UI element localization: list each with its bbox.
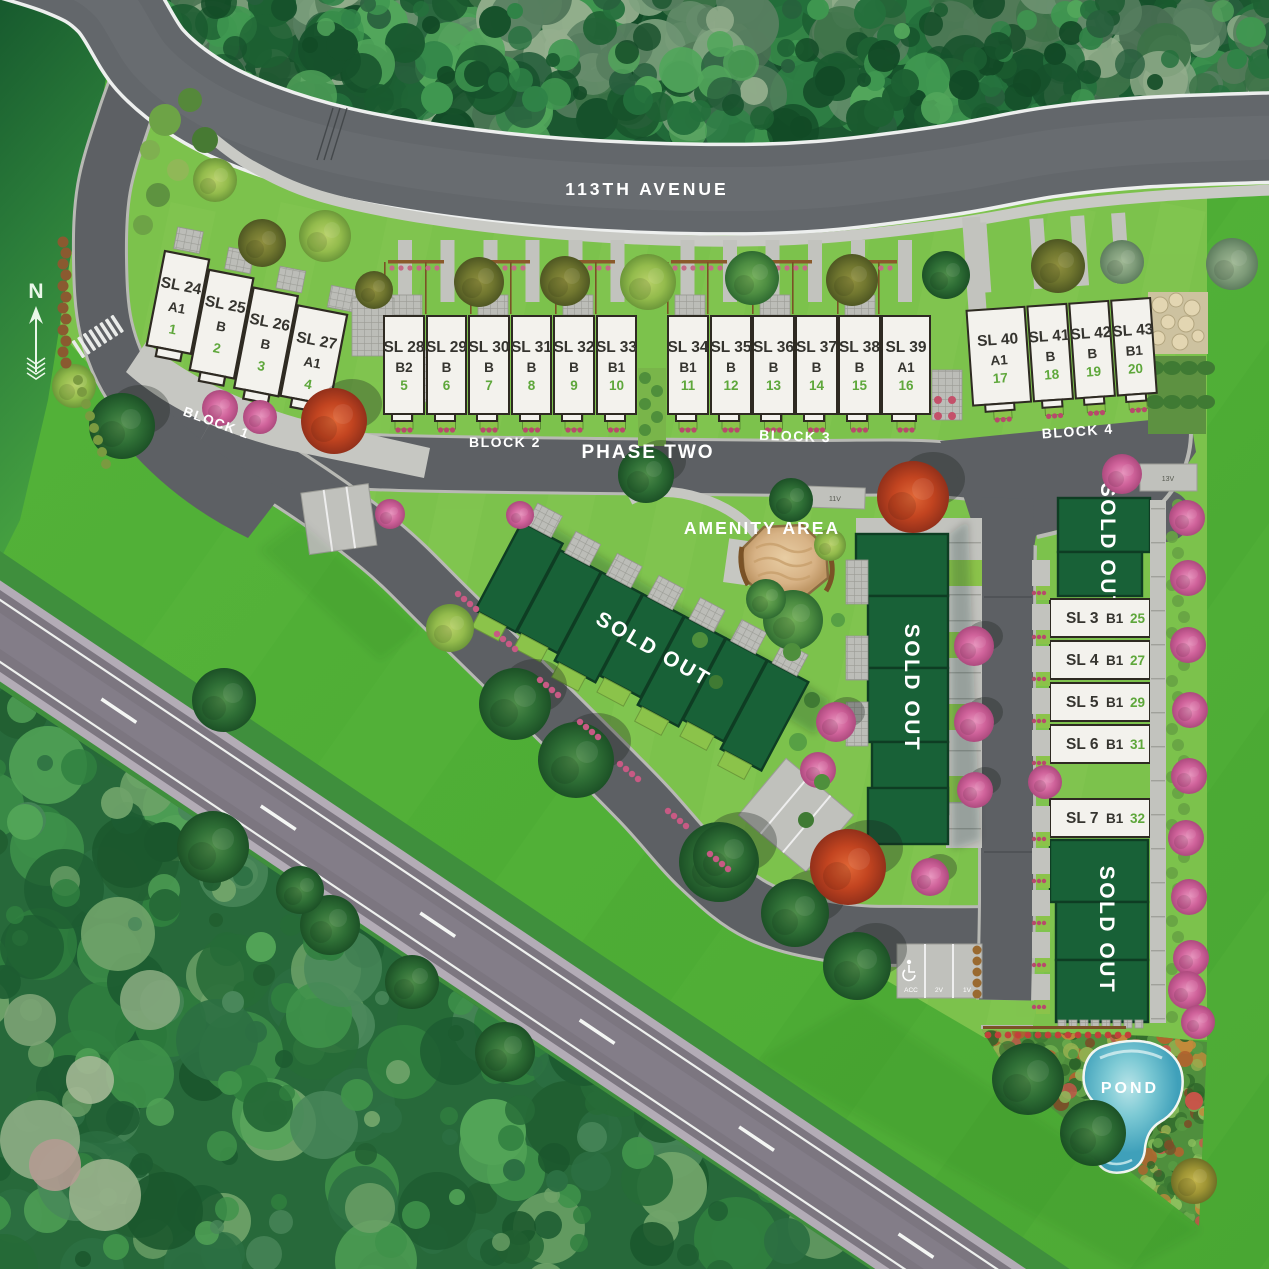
svg-text:14: 14	[809, 378, 825, 393]
svg-text:AMENITY AREA: AMENITY AREA	[684, 518, 840, 538]
svg-text:SL 42: SL 42	[1070, 324, 1112, 344]
svg-text:19: 19	[1086, 364, 1102, 380]
svg-text:7: 7	[485, 378, 493, 393]
svg-text:15: 15	[852, 378, 868, 393]
svg-text:SOLD OUT: SOLD OUT	[900, 624, 923, 753]
svg-text:SL 36: SL 36	[753, 339, 794, 356]
svg-text:B: B	[527, 360, 537, 375]
svg-text:17: 17	[992, 370, 1008, 386]
svg-text:32: 32	[1130, 811, 1145, 826]
svg-text:5: 5	[400, 378, 408, 393]
svg-text:6: 6	[443, 378, 451, 393]
svg-text:BLOCK 3: BLOCK 3	[759, 427, 831, 446]
svg-text:13: 13	[766, 378, 782, 393]
svg-text:SL 43: SL 43	[1112, 321, 1155, 341]
svg-text:B1: B1	[1106, 811, 1124, 826]
svg-text:SL 30: SL 30	[468, 339, 509, 356]
svg-text:B1: B1	[1106, 653, 1124, 668]
svg-text:20: 20	[1127, 361, 1143, 377]
svg-text:B: B	[484, 360, 494, 375]
svg-text:POND: POND	[1101, 1080, 1159, 1097]
svg-text:B: B	[442, 360, 452, 375]
svg-text:SL 4: SL 4	[1066, 652, 1099, 669]
svg-text:SOLD OUT: SOLD OUT	[1096, 483, 1119, 612]
svg-text:2V: 2V	[935, 987, 944, 994]
svg-text:B: B	[855, 360, 865, 375]
svg-text:SL 35: SL 35	[710, 339, 751, 356]
svg-text:A1: A1	[990, 352, 1009, 368]
svg-text:B: B	[569, 360, 579, 375]
svg-text:SL 7: SL 7	[1066, 810, 1098, 827]
svg-text:SL 33: SL 33	[596, 339, 637, 356]
svg-text:B1: B1	[679, 360, 697, 375]
svg-text:SL 29: SL 29	[426, 339, 467, 356]
svg-text:SL 40: SL 40	[977, 330, 1019, 350]
svg-text:B: B	[769, 360, 779, 375]
svg-text:B: B	[812, 360, 822, 375]
svg-text:SL 37: SL 37	[796, 339, 837, 356]
svg-text:B: B	[1087, 346, 1098, 362]
svg-text:B1: B1	[608, 360, 626, 375]
svg-text:SL 32: SL 32	[553, 339, 594, 356]
svg-text:1V: 1V	[963, 987, 972, 994]
svg-text:113TH AVENUE: 113TH AVENUE	[565, 179, 728, 199]
svg-text:31: 31	[1130, 737, 1146, 752]
svg-text:8: 8	[528, 378, 536, 393]
svg-text:SL 34: SL 34	[667, 339, 708, 356]
svg-text:B1: B1	[1125, 343, 1144, 359]
svg-text:B1: B1	[1106, 737, 1124, 752]
svg-text:SL 6: SL 6	[1066, 736, 1099, 753]
svg-text:SL 3: SL 3	[1066, 610, 1099, 627]
svg-text:SL 38: SL 38	[839, 339, 880, 356]
svg-text:27: 27	[1130, 653, 1145, 668]
svg-text:18: 18	[1044, 367, 1061, 383]
svg-text:SL 31: SL 31	[511, 339, 552, 356]
svg-text:N: N	[28, 280, 43, 303]
svg-text:13V: 13V	[1162, 476, 1175, 483]
svg-text:SL 41: SL 41	[1028, 327, 1071, 347]
svg-text:PHASE TWO: PHASE TWO	[581, 442, 714, 463]
svg-text:11V: 11V	[829, 496, 842, 503]
svg-text:25: 25	[1130, 611, 1146, 626]
svg-text:A1: A1	[897, 360, 915, 375]
svg-text:29: 29	[1130, 695, 1145, 710]
svg-text:B1: B1	[1106, 611, 1124, 626]
svg-text:BLOCK 2: BLOCK 2	[469, 434, 541, 450]
svg-text:12: 12	[723, 378, 738, 393]
svg-text:SL 39: SL 39	[885, 339, 926, 356]
svg-text:10: 10	[609, 378, 624, 393]
svg-text:9: 9	[570, 378, 578, 393]
svg-text:B: B	[726, 360, 736, 375]
svg-text:SL 28: SL 28	[383, 339, 424, 356]
svg-text:ACC: ACC	[904, 987, 918, 994]
svg-text:SOLD OUT: SOLD OUT	[1095, 866, 1118, 995]
svg-text:B2: B2	[395, 360, 412, 375]
svg-text:B1: B1	[1106, 695, 1124, 710]
svg-text:11: 11	[681, 378, 696, 393]
svg-text:16: 16	[898, 378, 914, 393]
svg-text:B: B	[1045, 349, 1056, 365]
svg-text:SL 5: SL 5	[1066, 694, 1099, 711]
